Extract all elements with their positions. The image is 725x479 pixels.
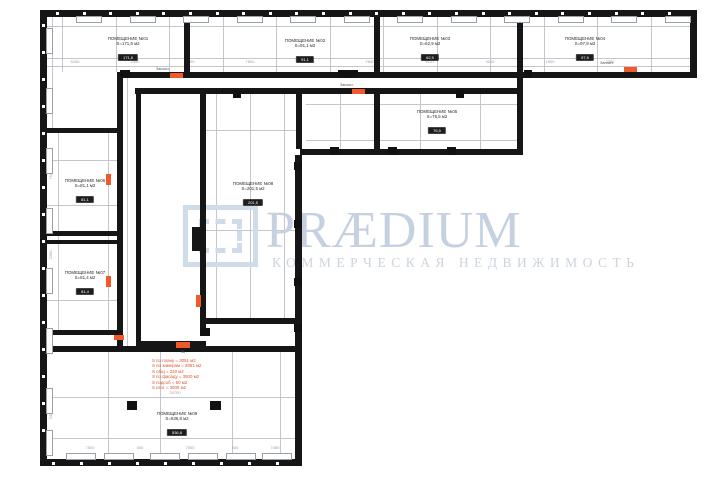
column: [294, 278, 302, 286]
bay-line: [169, 17, 170, 72]
window: [46, 148, 53, 174]
window: [46, 328, 53, 354]
bay-line: [544, 17, 545, 72]
column: [120, 70, 130, 78]
door-marker: [106, 174, 111, 185]
wall: [135, 88, 523, 94]
window: [46, 208, 53, 234]
wall-joint: [108, 462, 111, 465]
room-area: S=62,9 м2: [410, 41, 450, 46]
wall-joint: [276, 462, 279, 465]
dimension-text: 7500: [86, 446, 95, 450]
window: [344, 16, 370, 23]
window: [183, 16, 209, 23]
floor-plan-drawing: PRÆDIUM КОММЕРЧЕСКАЯ НЕДВИЖИМОСТЬ 235020…: [0, 0, 725, 479]
room-label: ПОМЕЩЕНИЕ №02S=91,1 м291,1: [285, 38, 325, 66]
door-marker: [106, 276, 111, 287]
window: [46, 430, 53, 456]
wall: [40, 240, 122, 244]
column: [447, 147, 456, 155]
room-area-badge: 201,5: [243, 199, 263, 206]
wall-joint: [42, 213, 45, 216]
wall-joint: [42, 132, 45, 135]
wall-joint: [192, 462, 195, 465]
dimension-text: 2350: [49, 251, 53, 260]
column: [524, 70, 532, 78]
room-area: S=91,1 м2: [285, 43, 325, 48]
column: [456, 90, 464, 98]
wall: [374, 94, 380, 149]
partition-line: [232, 352, 233, 459]
dimension-text: 500: [137, 446, 144, 450]
dimension-text: 500: [232, 446, 239, 450]
wall-joint: [561, 12, 564, 15]
area-summary-note: S по плану = 3051 м2S по замерам = 3051 …: [152, 358, 201, 390]
column: [388, 147, 397, 155]
wall-joint: [42, 186, 45, 189]
wall-joint: [295, 12, 298, 15]
wall-joint: [162, 12, 165, 15]
door-marker: [170, 73, 183, 78]
area-summary-line: S по фасаду = 3500 м2: [152, 374, 201, 379]
room-label: ПОМЕЩЕНИЕ №07S=81,4 м281,4: [65, 270, 105, 298]
wall-joint: [42, 267, 45, 270]
window: [611, 16, 637, 23]
wall: [192, 227, 201, 251]
wall: [296, 88, 302, 149]
room-label: ПОМЕЩЕНИЕ №05S=76,5 м276,5: [417, 109, 457, 137]
window: [130, 16, 156, 23]
wall-joint: [42, 375, 45, 378]
area-summary-line: S итог = 3000 м2: [152, 385, 201, 390]
room-area-badge: 171,6: [118, 54, 138, 61]
wall-joint: [641, 12, 644, 15]
watermark-subtitle: КОММЕРЧЕСКАЯ НЕДВИЖИМОСТЬ: [272, 255, 640, 271]
partition-line: [206, 230, 296, 231]
room-label: ПОМЕЩЕНИЕ №01S=171,6 м2171,6: [108, 36, 148, 64]
partition-line: [47, 300, 117, 301]
room-label: ПОМЕЩЕНИЕ №08S=201,5 м2201,5: [233, 181, 273, 209]
wall: [120, 72, 697, 78]
wall-joint: [482, 12, 485, 15]
wall-joint: [220, 462, 223, 465]
room-area-badge: 536,8: [167, 429, 187, 436]
partition-line: [108, 352, 109, 459]
wall-joint: [42, 294, 45, 297]
room-area-badge: 76,5: [428, 127, 446, 134]
wall-joint: [375, 12, 378, 15]
wall-joint: [248, 462, 251, 465]
wall-joint: [428, 12, 431, 15]
wall: [200, 88, 206, 328]
wall-joint: [136, 12, 139, 15]
room-area: S=536,8 м2: [157, 416, 197, 421]
wall-joint: [42, 321, 45, 324]
window: [665, 16, 691, 23]
room-label: ПОМЕЩЕНИЕ №03S=62,9 м262,9: [410, 36, 450, 64]
wall-joint: [615, 12, 618, 15]
room-area-badge: 91,1: [296, 56, 314, 63]
wall-joint: [83, 12, 86, 15]
wall-joint: [164, 462, 167, 465]
window: [226, 453, 256, 460]
window: [46, 268, 53, 294]
wall: [295, 155, 302, 466]
dimension-text: 3210: [486, 60, 495, 64]
window: [290, 16, 316, 23]
column: [294, 162, 302, 170]
wall-joint: [455, 12, 458, 15]
door-marker: [114, 335, 124, 340]
partition-line: [280, 352, 281, 459]
bay-line: [62, 17, 63, 72]
column: [127, 401, 137, 410]
window: [451, 16, 477, 23]
wall-joint: [42, 105, 45, 108]
wall-joint: [269, 12, 272, 15]
exit-label: Запасн.: [600, 61, 614, 65]
partition-line: [47, 160, 117, 161]
room-area-badge: 97,9: [576, 54, 594, 61]
partition-line: [47, 397, 295, 398]
wall: [40, 346, 302, 352]
wall-joint: [42, 429, 45, 432]
window: [558, 16, 584, 23]
bay-line: [383, 17, 384, 72]
partition-line: [284, 94, 285, 318]
room-area-badge: 62,9: [421, 54, 439, 61]
partition-line: [306, 104, 517, 105]
room-area: S=97,9 м2: [565, 41, 605, 46]
dimension-text: 1500: [546, 60, 555, 64]
window: [150, 453, 180, 460]
column: [233, 90, 241, 98]
wall-joint: [136, 462, 139, 465]
room-area: S=76,5 м2: [417, 114, 457, 119]
wall-joint: [80, 462, 83, 465]
door-marker: [176, 342, 190, 348]
wall-joint: [242, 12, 245, 15]
column: [338, 70, 358, 78]
dimension-text: 7460: [271, 446, 280, 450]
room-area: S=171,6 м2: [108, 41, 148, 46]
column: [330, 147, 339, 155]
partition-line: [127, 78, 128, 346]
room-area: S=81,4 м2: [65, 275, 105, 280]
wall-joint: [42, 240, 45, 243]
window: [262, 453, 292, 460]
dimension-text: 24700: [169, 391, 180, 395]
room-area-badge: 81,4: [76, 288, 94, 295]
door-marker: [196, 295, 201, 307]
wall: [117, 72, 123, 352]
wall: [40, 128, 122, 133]
bay-line: [651, 17, 652, 72]
wall-joint: [42, 348, 45, 351]
exit-label: Запасн.: [340, 83, 354, 87]
wall: [136, 94, 141, 346]
wall: [184, 16, 190, 74]
room-label: ПОМЕЩЕНИЕ №09S=536,8 м2536,8: [157, 411, 197, 439]
wall-joint: [42, 24, 45, 27]
column: [210, 401, 221, 410]
wall-joint: [402, 12, 405, 15]
wall-joint: [588, 12, 591, 15]
wall-joint: [42, 402, 45, 405]
exit-label-short: Зк: [181, 350, 185, 354]
partition-line: [47, 66, 690, 67]
exit-label: Запасн.: [156, 67, 170, 71]
room-label: ПОМЕЩЕНИЕ №04S=97,9 м297,9: [565, 36, 605, 64]
wall: [374, 16, 380, 74]
wall-joint: [535, 12, 538, 15]
dimension-text: 7500: [186, 446, 195, 450]
wall-joint: [42, 159, 45, 162]
bay-line: [223, 17, 224, 72]
wall-joint: [189, 12, 192, 15]
partition-line: [206, 130, 296, 131]
partition-line: [47, 26, 690, 27]
window: [66, 453, 96, 460]
wall-joint: [42, 78, 45, 81]
column: [200, 328, 210, 336]
watermark-brand: PRÆDIUM: [266, 205, 522, 257]
wall: [690, 10, 697, 78]
window: [76, 16, 102, 23]
bay-line: [276, 17, 277, 72]
room-area: S=201,5 м2: [233, 186, 273, 191]
wall-joint: [349, 12, 352, 15]
room-area-badge: 81,1: [76, 196, 94, 203]
bay-line: [330, 17, 331, 72]
wall-joint: [508, 12, 511, 15]
door-marker: [624, 67, 637, 72]
wall-joint: [322, 12, 325, 15]
room-area: S=81,1 м2: [65, 183, 105, 188]
window: [504, 16, 530, 23]
dimension-text: 7500: [246, 60, 255, 64]
column: [294, 324, 302, 332]
room-label: ПОМЕЩЕНИЕ №06S=81,1 м281,1: [65, 178, 105, 206]
wall-joint: [52, 462, 55, 465]
window: [397, 16, 423, 23]
wall-joint: [56, 12, 59, 15]
window: [46, 388, 53, 414]
wall-joint: [668, 12, 671, 15]
wall-joint: [216, 12, 219, 15]
wall-joint: [42, 51, 45, 54]
door-marker: [352, 89, 365, 94]
partition-line: [306, 140, 517, 141]
wall-joint: [109, 12, 112, 15]
window: [104, 453, 134, 460]
dimension-text: 5280: [71, 60, 80, 64]
window: [188, 453, 218, 460]
window: [46, 28, 53, 54]
window: [237, 16, 263, 23]
column: [294, 220, 302, 228]
partition-line: [216, 94, 217, 318]
wall: [200, 318, 302, 324]
wall: [517, 16, 523, 78]
window: [46, 88, 53, 114]
